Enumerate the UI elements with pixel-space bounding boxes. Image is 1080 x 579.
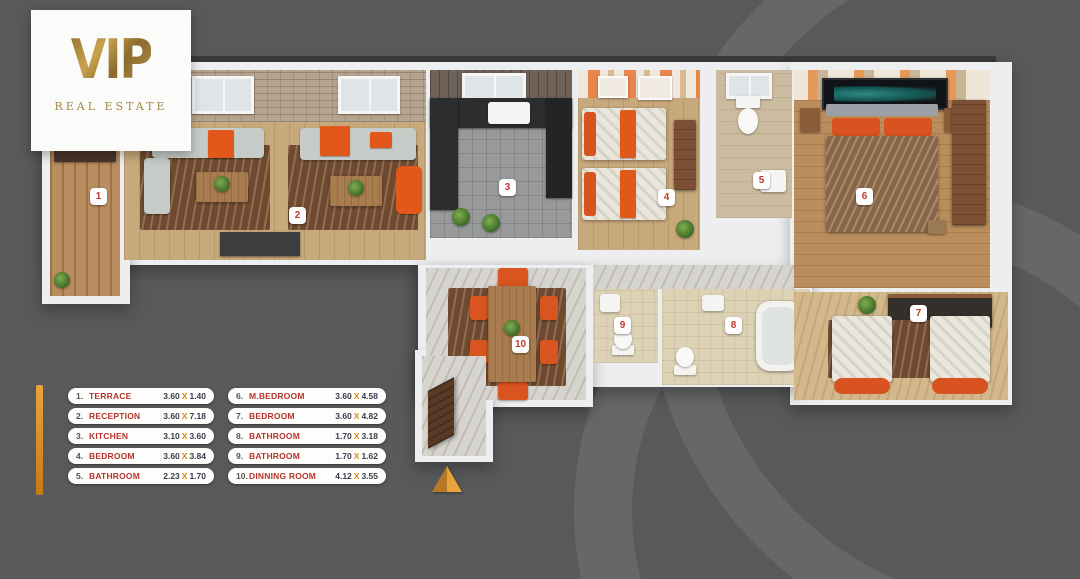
legend-dimensions: 2.23X1.70 <box>163 471 206 481</box>
logo-subtitle: REAL ESTATE <box>31 100 191 113</box>
legend-item: 8. BATHROOM 1.70X3.18 <box>228 428 386 444</box>
legend-dimensions: 1.70X3.18 <box>335 431 378 441</box>
sofa-throw <box>320 126 350 156</box>
legend-item: 2. RECEPTION 3.60X7.18 <box>68 408 214 424</box>
dim-b: 1.40 <box>189 391 206 401</box>
legend-number: 10. <box>236 471 249 481</box>
bedroom4-plant <box>676 220 694 238</box>
legend-number: 9. <box>236 451 249 461</box>
toilet <box>738 108 758 134</box>
dim-x: X <box>180 391 190 401</box>
legend-item: 10. DINNING ROOM 4.12X3.55 <box>228 468 386 484</box>
dim-x: X <box>352 391 362 401</box>
bed-runner <box>620 110 636 158</box>
legend-dimensions: 4.12X3.55 <box>335 471 378 481</box>
dining-centerpiece <box>504 320 520 336</box>
legend-room-name: DINNING ROOM <box>249 471 335 481</box>
dining-chair <box>540 340 558 364</box>
legend-number: 4. <box>76 451 89 461</box>
sofa-throw <box>208 130 234 158</box>
window-pane <box>749 76 751 96</box>
dim-x: X <box>180 451 190 461</box>
bed-pillow <box>832 118 880 136</box>
room-bathroom-5 <box>716 70 792 218</box>
room-marker-5: 5 <box>753 172 770 189</box>
bedroom7-plant <box>858 296 876 314</box>
room-marker-10: 10 <box>512 336 529 353</box>
dim-b: 4.82 <box>361 411 378 421</box>
room-bedroom-7 <box>794 292 1008 400</box>
room-marker-9: 9 <box>614 317 631 334</box>
bed-pillow <box>932 378 988 394</box>
dim-x: X <box>180 431 190 441</box>
legend-number: 2. <box>76 411 89 421</box>
dim-a: 3.10 <box>163 431 180 441</box>
room-marker-2: 2 <box>289 207 306 224</box>
dim-b: 1.62 <box>361 451 378 461</box>
entrance-vestibule <box>422 356 486 456</box>
dim-b: 3.55 <box>361 471 378 481</box>
bathroom9-sink <box>600 294 620 312</box>
wall-picture <box>638 76 672 100</box>
logo: VIP REAL ESTATE <box>31 10 191 151</box>
bed <box>832 316 892 382</box>
legend-room-name: TERRACE <box>89 391 163 401</box>
dim-a: 2.23 <box>163 471 180 481</box>
dim-a: 3.60 <box>163 451 180 461</box>
dim-a: 3.60 <box>163 391 180 401</box>
terrace-plant <box>54 272 70 288</box>
legend-number: 3. <box>76 431 89 441</box>
stool <box>928 220 946 234</box>
dim-x: X <box>180 471 190 481</box>
kitchen-fridge <box>546 98 572 198</box>
dim-b: 1.70 <box>189 471 206 481</box>
room-marker-7: 7 <box>910 305 927 322</box>
bathtub-basin <box>762 307 796 365</box>
bed-pillow <box>584 112 596 156</box>
master-wardrobe <box>952 100 986 225</box>
kitchen-sink <box>488 102 530 124</box>
legend-room-name: BATHROOM <box>249 451 335 461</box>
art-paint <box>834 86 936 101</box>
nightstand <box>800 108 820 132</box>
legend-item: 7. BEDROOM 3.60X4.82 <box>228 408 386 424</box>
dim-x: X <box>180 411 190 421</box>
room-marker-4: 4 <box>658 189 675 206</box>
legend-item: 5. BATHROOM 2.23X1.70 <box>68 468 214 484</box>
room-marker-3: 3 <box>499 179 516 196</box>
legend-room-name: BATHROOM <box>249 431 335 441</box>
dim-a: 3.60 <box>335 411 352 421</box>
window-pane <box>223 79 225 111</box>
legend-dimensions: 3.60X7.18 <box>163 411 206 421</box>
bed-pillow <box>584 172 596 216</box>
dim-a: 1.70 <box>335 451 352 461</box>
room-bathroom-8 <box>662 289 810 385</box>
dim-a: 3.60 <box>335 391 352 401</box>
legend-dimensions: 3.60X3.84 <box>163 451 206 461</box>
kitchen-counter <box>430 98 458 210</box>
room-marker-8: 8 <box>725 317 742 334</box>
entrance-door <box>428 377 454 449</box>
reception-window <box>338 76 400 114</box>
kitchen-window <box>462 73 526 100</box>
legend-column-right: 6. M.BEDROOM 3.60X4.58 7. BEDROOM 3.60X4… <box>228 388 386 488</box>
legend-dimensions: 3.60X1.40 <box>163 391 206 401</box>
room-marker-1: 1 <box>90 188 107 205</box>
room-master-bedroom <box>794 70 990 288</box>
bed-headboard <box>826 104 938 116</box>
dining-chair <box>498 268 528 288</box>
reception-window <box>192 76 254 114</box>
legend-dimensions: 1.70X1.62 <box>335 451 378 461</box>
legend-item: 9. BATHROOM 1.70X1.62 <box>228 448 386 464</box>
dim-x: X <box>352 411 362 421</box>
legend-number: 5. <box>76 471 89 481</box>
tv-bench <box>220 232 300 256</box>
toilet <box>676 347 694 367</box>
bed-pillow <box>834 378 890 394</box>
window-pane <box>369 79 371 111</box>
legend-number: 6. <box>236 391 249 401</box>
legend-number: 7. <box>236 411 249 421</box>
legend-number: 1. <box>76 391 89 401</box>
dim-x: X <box>352 431 362 441</box>
dim-b: 3.84 <box>189 451 206 461</box>
bed-pillow <box>884 118 932 136</box>
legend-dimensions: 3.60X4.58 <box>335 391 378 401</box>
room-bedroom-4 <box>578 70 700 250</box>
dim-x: X <box>352 471 362 481</box>
bed <box>930 316 990 382</box>
window-pane <box>494 76 496 97</box>
kitchen-plant <box>452 208 470 226</box>
table-plant <box>214 176 230 192</box>
legend-dimensions: 3.60X4.82 <box>335 411 378 421</box>
legend-room-name: RECEPTION <box>89 411 163 421</box>
kitchen-plant <box>482 214 500 232</box>
legend-room-name: BEDROOM <box>89 451 163 461</box>
legend-item: 1. TERRACE 3.60X1.40 <box>68 388 214 404</box>
sofa <box>144 158 170 214</box>
armchair-throw <box>396 166 422 214</box>
legend-item: 3. KITCHEN 3.10X3.60 <box>68 428 214 444</box>
dim-a: 4.12 <box>335 471 352 481</box>
toilet <box>736 96 760 108</box>
dining-chair <box>470 296 488 320</box>
dim-b: 3.18 <box>361 431 378 441</box>
bedroom4-wardrobe <box>674 120 696 190</box>
master-bed-blanket <box>826 136 938 232</box>
legend-room-name: BEDROOM <box>249 411 335 421</box>
dim-b: 4.58 <box>361 391 378 401</box>
floor-plan-scene: 1 2 3 4 5 6 7 8 9 10 VIP REAL ESTATE 1. … <box>0 0 1080 579</box>
entrance-arrow-icon <box>432 466 462 492</box>
bed-runner <box>620 170 636 218</box>
dim-b: 7.18 <box>189 411 206 421</box>
legend-column-left: 1. TERRACE 3.60X1.40 2. RECEPTION 3.60X7… <box>68 388 214 488</box>
dim-a: 3.60 <box>163 411 180 421</box>
room-marker-6: 6 <box>856 188 873 205</box>
room-kitchen <box>430 70 572 238</box>
legend-number: 8. <box>236 431 249 441</box>
sofa <box>300 128 416 160</box>
wall-picture <box>598 76 628 98</box>
bathroom8-sink <box>702 295 724 311</box>
dining-chair <box>540 296 558 320</box>
room-terrace <box>50 140 120 296</box>
dining-chair <box>498 382 528 400</box>
legend-accent-bar <box>36 385 43 495</box>
sofa-cushion <box>370 132 392 148</box>
logo-monogram: VIP <box>71 27 151 91</box>
legend-dimensions: 3.10X3.60 <box>163 431 206 441</box>
table-plant <box>348 180 364 196</box>
dim-a: 1.70 <box>335 431 352 441</box>
legend-item: 4. BEDROOM 3.60X3.84 <box>68 448 214 464</box>
legend-room-name: BATHROOM <box>89 471 163 481</box>
legend-room-name: KITCHEN <box>89 431 163 441</box>
legend-room-name: M.BEDROOM <box>249 391 335 401</box>
dim-b: 3.60 <box>189 431 206 441</box>
dim-x: X <box>352 451 362 461</box>
hallway-corridor <box>594 265 794 289</box>
legend-item: 6. M.BEDROOM 3.60X4.58 <box>228 388 386 404</box>
